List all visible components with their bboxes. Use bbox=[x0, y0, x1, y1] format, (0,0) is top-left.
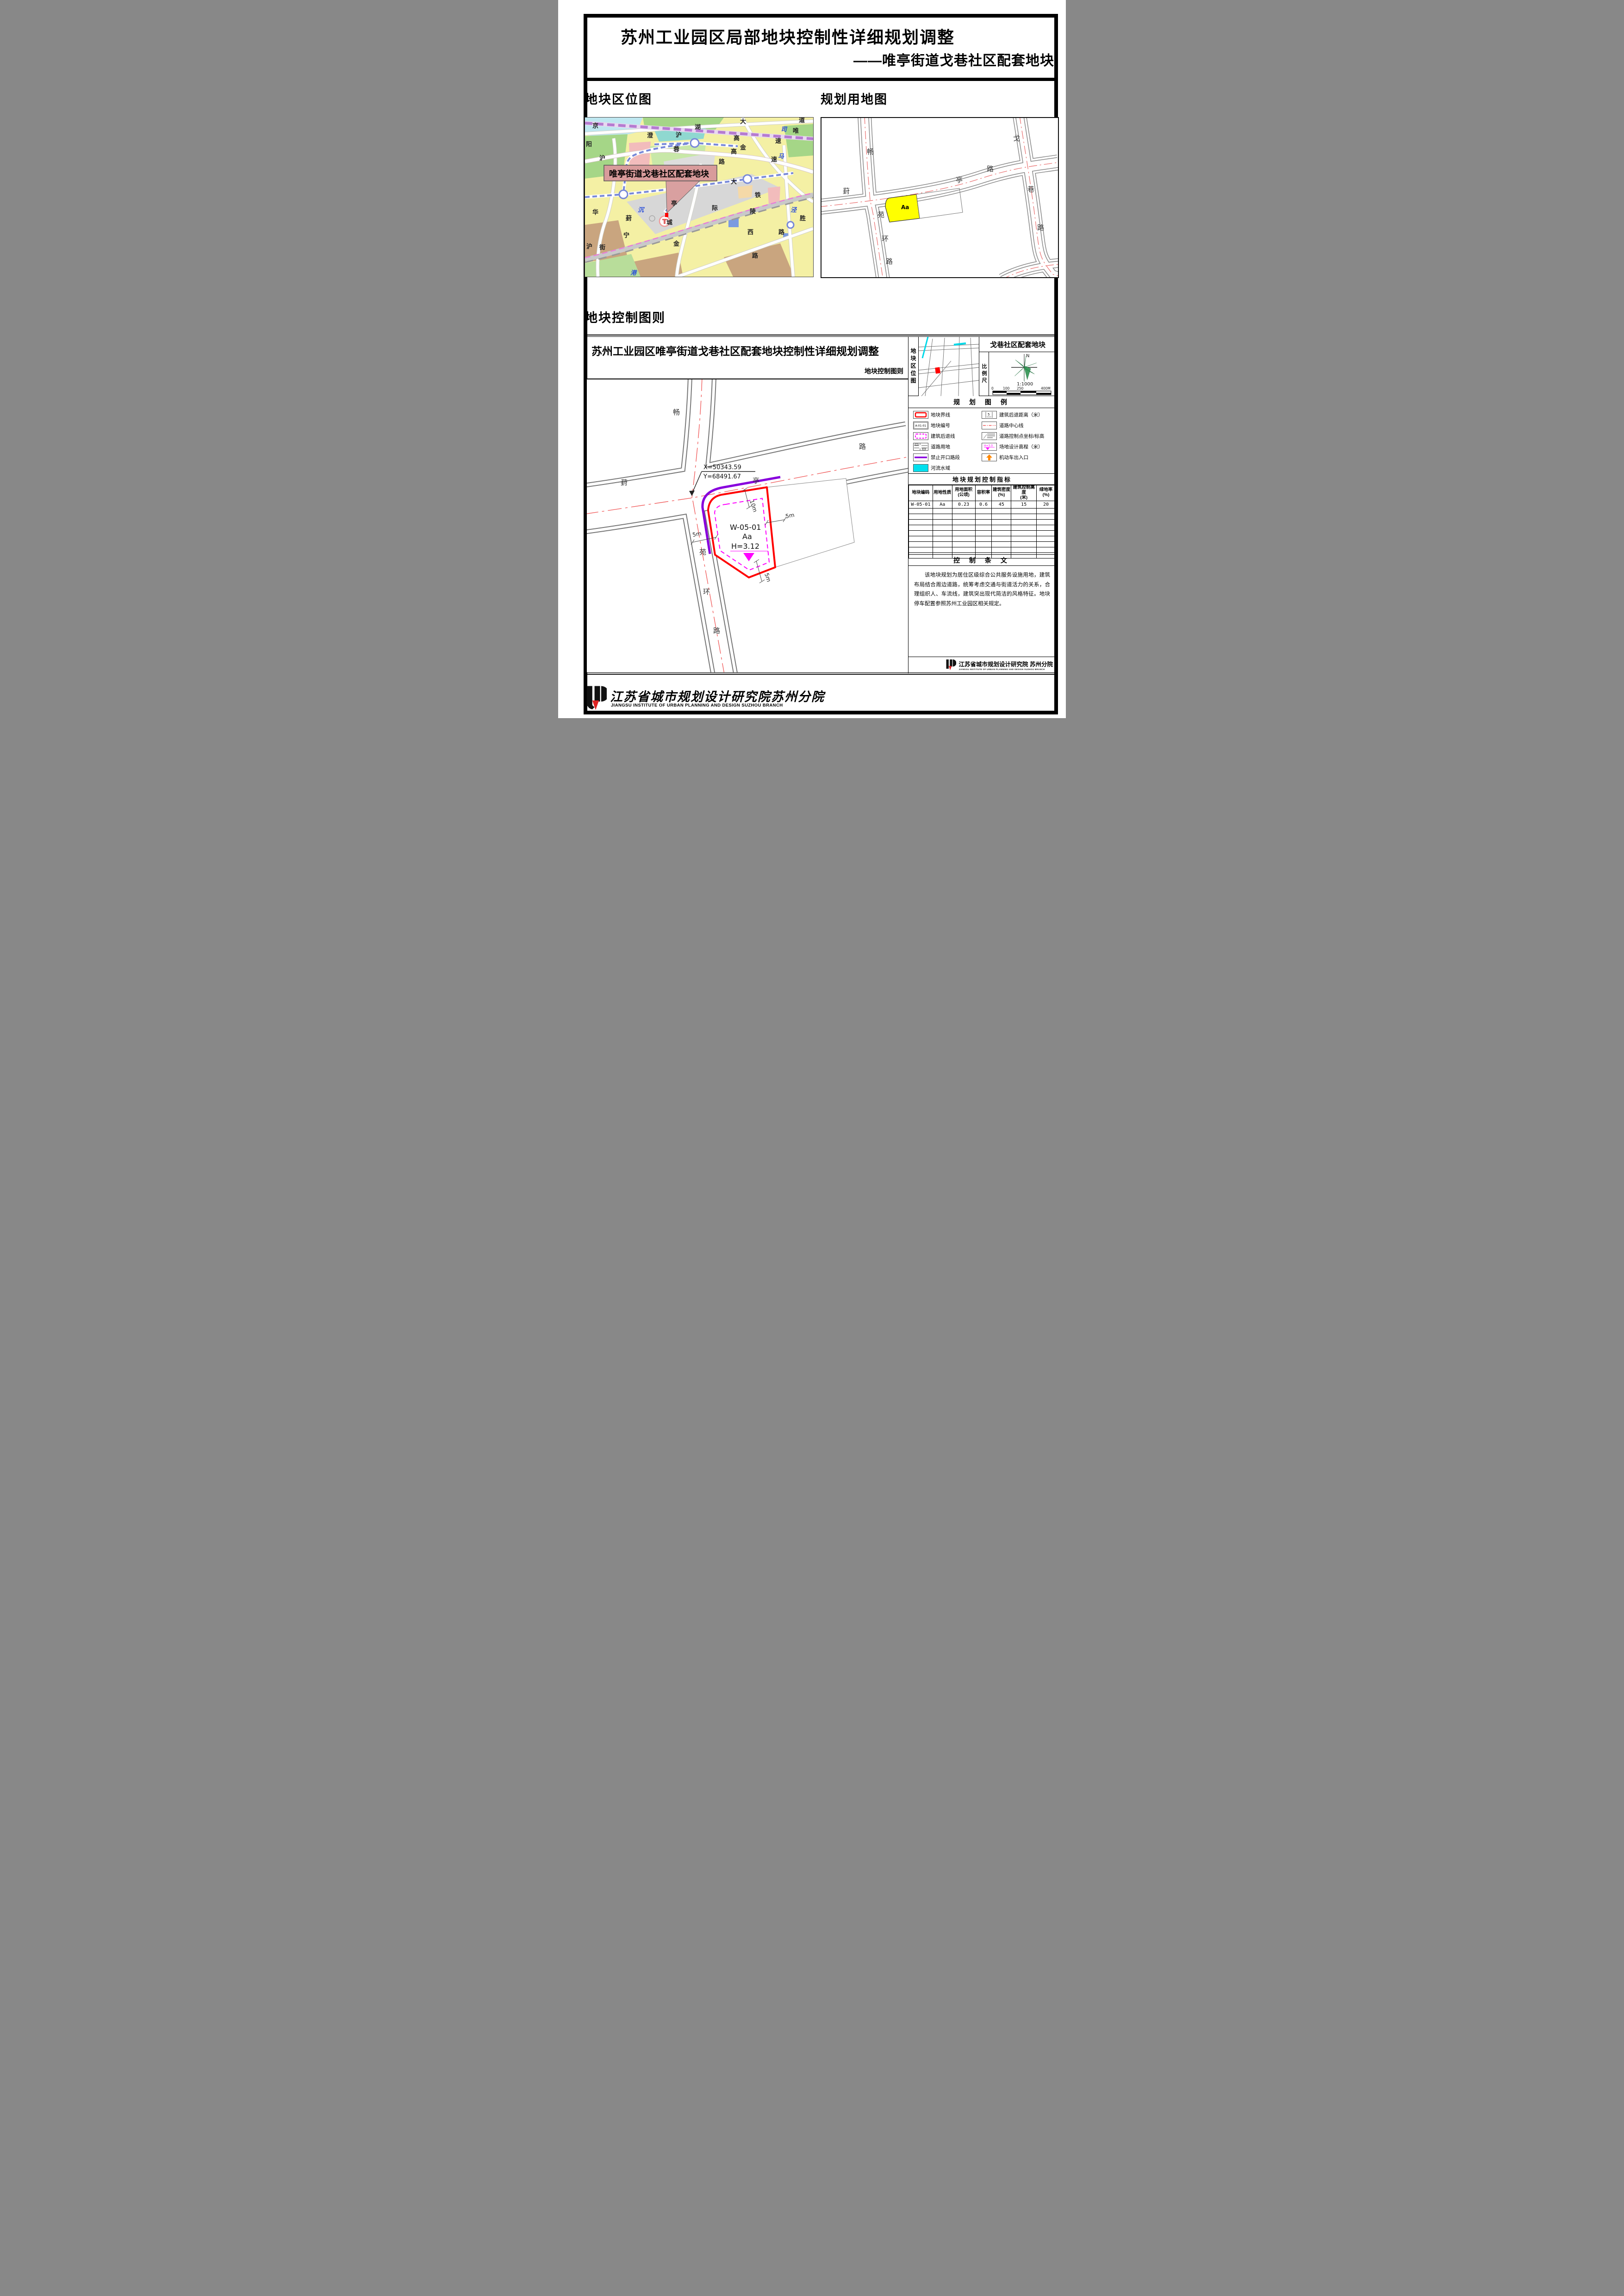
jp-logo-icon bbox=[585, 685, 607, 712]
map-label: 环 bbox=[882, 235, 889, 243]
map-label: 路 bbox=[987, 165, 994, 173]
map-label: 唯 bbox=[793, 127, 799, 135]
table-row-empty bbox=[909, 508, 1056, 514]
chart-header: 苏州工业园区唯亭街道戈巷社区配套地块控制性详细规划调整 地块控制图则 bbox=[587, 337, 908, 379]
legend-label: 建筑后退线 bbox=[931, 433, 955, 440]
plot-use: Aa bbox=[742, 532, 752, 541]
col-header: 用地性质 bbox=[933, 490, 951, 495]
footer-institute-cn: 江苏省城市规划设计研究院苏州分院 bbox=[610, 687, 825, 705]
map-label: 沪 bbox=[599, 155, 605, 162]
map-label: 阳 bbox=[586, 141, 592, 148]
legend-label: 道路控制点坐标/标高 bbox=[999, 433, 1044, 440]
map-label: 司 bbox=[781, 126, 788, 133]
col-header: 容积率 bbox=[977, 490, 990, 495]
legend-label: 地块编号 bbox=[931, 422, 950, 429]
cell-far: 0.6 bbox=[975, 501, 992, 508]
legend-label: 禁止开口路段 bbox=[931, 454, 960, 461]
vehicle-access-icon bbox=[982, 453, 997, 461]
cell-height: 15 bbox=[1011, 501, 1037, 508]
map-label: 巷 bbox=[1027, 185, 1034, 193]
plot-marker bbox=[935, 367, 940, 373]
callout-text: 唯亭街道戈巷社区配套地块 bbox=[609, 169, 709, 179]
landuse-map: Aa 畅 苑 环 路 葑 亭 路 戈 巷 路 bbox=[821, 117, 1059, 278]
institute-name-cn: 江苏省城市规划设计研究院 苏州分院 bbox=[959, 659, 1053, 668]
table-row-empty bbox=[909, 530, 1056, 536]
river-water-icon bbox=[913, 464, 928, 472]
map-label: 港 bbox=[630, 269, 637, 277]
coord-x: X=50343.59 bbox=[703, 464, 741, 471]
map-label: 亭 bbox=[753, 477, 759, 485]
chart-subtitle: 地块控制图则 bbox=[865, 366, 903, 376]
control-chart-inner: 苏州工业园区唯亭街道戈巷社区配套地块控制性详细规划调整 地块控制图则 bbox=[586, 336, 1055, 673]
map-label: 戈 bbox=[1013, 134, 1020, 143]
map-label: 路 bbox=[1037, 223, 1044, 232]
scale-tick: 400M bbox=[1041, 386, 1051, 391]
map-label: 京 bbox=[592, 122, 598, 130]
map-label: 泾 bbox=[790, 206, 797, 214]
map-label: 胜 bbox=[800, 215, 806, 222]
header-rule bbox=[584, 78, 1058, 81]
scale-tick: 100 bbox=[1003, 386, 1010, 391]
chart-info-panel: 地块区位图 戈巷社区配套地块 bbox=[908, 337, 1055, 673]
map-label: 苑 bbox=[877, 211, 884, 219]
panel-scale-strip: 比例尺 bbox=[979, 352, 989, 396]
road-centerline-icon bbox=[982, 422, 997, 429]
map-label: 街 bbox=[599, 244, 605, 251]
map-label: 蓉 bbox=[673, 146, 680, 153]
page-subtitle: ——唯亭街道戈巷社区配套地块 bbox=[853, 49, 1054, 69]
map-label: 路 bbox=[886, 257, 893, 266]
jp-logo-icon bbox=[945, 659, 956, 671]
map-label: 际 bbox=[712, 205, 718, 212]
map-label: 马 bbox=[778, 153, 784, 160]
map-label: 路 bbox=[859, 442, 866, 451]
mini-map-title: 戈巷社区配套地块 bbox=[979, 337, 1056, 352]
legend-label: 场地设计高程（米） bbox=[999, 443, 1043, 450]
chart-title: 苏州工业园区唯亭街道戈巷社区配套地块控制性详细规划调整 bbox=[591, 342, 879, 358]
map-label: 道 bbox=[799, 117, 805, 124]
map-label: 金 bbox=[673, 240, 680, 248]
setback-line-icon bbox=[913, 432, 928, 440]
map-label: 路 bbox=[719, 158, 725, 166]
cell-density: 45 bbox=[992, 501, 1011, 508]
compass-rose-icon: N bbox=[1009, 353, 1040, 385]
setback-distance-icon: 5 bbox=[982, 411, 997, 419]
map-label: 葑 bbox=[621, 478, 628, 487]
col-header: 用地面积 bbox=[955, 487, 972, 492]
col-header: 建筑控制高度 bbox=[1013, 485, 1035, 495]
cell-plot-code: W-05-01 bbox=[909, 501, 933, 508]
compass-north-label: N bbox=[1026, 354, 1029, 359]
map-label: 金 bbox=[740, 144, 747, 151]
plot-label: Aa bbox=[901, 204, 909, 211]
scale-bar: 0 100 250 400M bbox=[991, 386, 1051, 395]
table-row-empty bbox=[909, 519, 1056, 525]
legend-label: 道路用地 bbox=[931, 443, 950, 450]
legend-label: 机动车出入口 bbox=[999, 454, 1028, 461]
cell-land-use: Aa bbox=[933, 501, 952, 508]
table-row: W-05-01 Aa 0.23 0.6 45 15 20 bbox=[909, 501, 1056, 508]
plot-code: W-05-01 bbox=[730, 523, 761, 532]
svg-text:A-01-01: A-01-01 bbox=[915, 424, 927, 428]
plot-marker bbox=[665, 213, 668, 217]
map-label: 大 bbox=[731, 178, 737, 186]
map-label: 亭 bbox=[956, 176, 963, 184]
map-label: 湖 bbox=[695, 124, 701, 131]
section-label-location-map: 地块区位图 bbox=[585, 89, 652, 107]
svg-text:5: 5 bbox=[988, 413, 989, 416]
control-chart: 苏州工业园区唯亭街道戈巷社区配套地块控制性详细规划调整 地块控制图则 bbox=[585, 335, 1057, 675]
map-label: 华 bbox=[592, 209, 598, 216]
map-label: 路 bbox=[713, 627, 720, 635]
indicators-table: 地块编码 用地性质 用地面积(公顷) 容积率 建筑密度(%) 建筑控制高度(米)… bbox=[908, 485, 1056, 558]
panel-location-strip: 地块区位图 bbox=[908, 337, 919, 396]
table-header-row: 地块编码 用地性质 用地面积(公顷) 容积率 建筑密度(%) 建筑控制高度(米)… bbox=[909, 485, 1056, 501]
scale-tick: 0 bbox=[991, 386, 994, 391]
legend-label: 建筑后退距离（米） bbox=[999, 411, 1043, 418]
map-label: 陵 bbox=[750, 208, 756, 215]
compass-and-scale: N 1: bbox=[989, 352, 1056, 396]
map-label: 沪 bbox=[586, 243, 592, 250]
page-title: 苏州工业园区局部地块控制性详细规划调整 bbox=[621, 24, 955, 48]
map-label: 畅 bbox=[673, 408, 680, 416]
map-label: 大 bbox=[740, 118, 746, 125]
map-label: 葑 bbox=[843, 187, 850, 195]
control-plan-drawing: 10m 5m 5m 5m W-05-01 Aa H=3.12 X=50343.5… bbox=[587, 379, 908, 672]
table-row-empty bbox=[909, 547, 1056, 552]
institute-strip: 江苏省城市规划设计研究院 苏州分院 JIANGSU INSTITUTE OF U… bbox=[908, 657, 1056, 673]
map-label: 宁 bbox=[623, 232, 629, 239]
road-land-icon bbox=[913, 443, 928, 451]
table-row-empty bbox=[909, 536, 1056, 541]
plot-elevation: H=3.12 bbox=[731, 542, 759, 551]
plan-sheet: 苏州工业园区局部地块控制性详细规划调整 ——唯亭街道戈巷社区配套地块 地块区位图… bbox=[558, 0, 1066, 718]
cell-green: 20 bbox=[1037, 501, 1056, 508]
table-row-empty bbox=[909, 514, 1056, 519]
map-label: 速 bbox=[775, 137, 781, 145]
col-header: 地块编码 bbox=[912, 490, 929, 495]
cell-area: 0.23 bbox=[952, 501, 975, 508]
map-label: 苑 bbox=[699, 548, 706, 556]
map-label: 西 bbox=[747, 229, 753, 236]
map-label: 亭 bbox=[671, 200, 677, 207]
no-opening-icon bbox=[913, 453, 928, 461]
map-label: 畅 bbox=[867, 148, 874, 156]
indicators-title: 地块规划控制指标 bbox=[908, 474, 1056, 485]
coord-y: Y=68491.67 bbox=[703, 473, 741, 480]
institute-name-en: JIANGSU INSTITUTE OF URBAN PLANNING AND … bbox=[959, 668, 1053, 670]
road-control-point-icon bbox=[982, 432, 997, 440]
legend-label: 道路中心线 bbox=[999, 422, 1024, 429]
section-label-control-chart: 地块控制图则 bbox=[585, 308, 666, 326]
plot-boundary-icon bbox=[913, 411, 928, 419]
plot-number-icon: A-01-01 bbox=[913, 422, 928, 429]
provisions-title: 控 制 条 文 bbox=[908, 554, 1056, 566]
map-label: 路 bbox=[752, 252, 759, 260]
map-label: 路 bbox=[778, 229, 785, 236]
map-label: 城 bbox=[666, 219, 672, 226]
table-row-empty bbox=[909, 541, 1056, 547]
legend-label: 地块界线 bbox=[931, 411, 950, 418]
scale-tick: 250 bbox=[1017, 386, 1024, 391]
legend-title: 规 划 图 例 bbox=[908, 396, 1056, 408]
footer-institute-en: JIANGSU INSTITUTE OF URBAN PLANNING AND … bbox=[611, 703, 783, 708]
map-label: 高 bbox=[734, 135, 740, 142]
provisions-text: 该地块规划为居住区级综合公共服务设施用地，建筑布局结合周边道路，统筹考虑交通与街… bbox=[908, 566, 1056, 657]
col-header: 建筑密度 bbox=[993, 487, 1010, 492]
map-label: 速 bbox=[771, 156, 777, 163]
site-elevation-icon: H=3.0 bbox=[982, 443, 997, 451]
legend: 地块界线 A-01-01 地块编号 建筑后退线 道路用地 bbox=[908, 408, 1056, 474]
mini-location-map bbox=[919, 337, 979, 396]
map-label: 葑 bbox=[626, 215, 632, 222]
section-label-landuse-map: 规划用地图 bbox=[821, 89, 888, 107]
map-label: 高 bbox=[731, 148, 737, 155]
map-label: 沪 bbox=[676, 131, 682, 139]
map-label: 铁 bbox=[754, 192, 761, 199]
legend-label: 河流水域 bbox=[931, 465, 950, 472]
svg-text:H=3.0: H=3.0 bbox=[984, 444, 993, 447]
map-label: 环 bbox=[703, 588, 710, 596]
location-map: 唯亭街道戈巷社区配套地块 京 沪 高 速 澄 阳 湖 大 道 司 唯 蓉 高 速… bbox=[585, 117, 814, 277]
map-label: 澄 bbox=[647, 132, 653, 139]
table-row-empty bbox=[909, 525, 1056, 530]
col-header: 绿地率 bbox=[1039, 487, 1053, 492]
